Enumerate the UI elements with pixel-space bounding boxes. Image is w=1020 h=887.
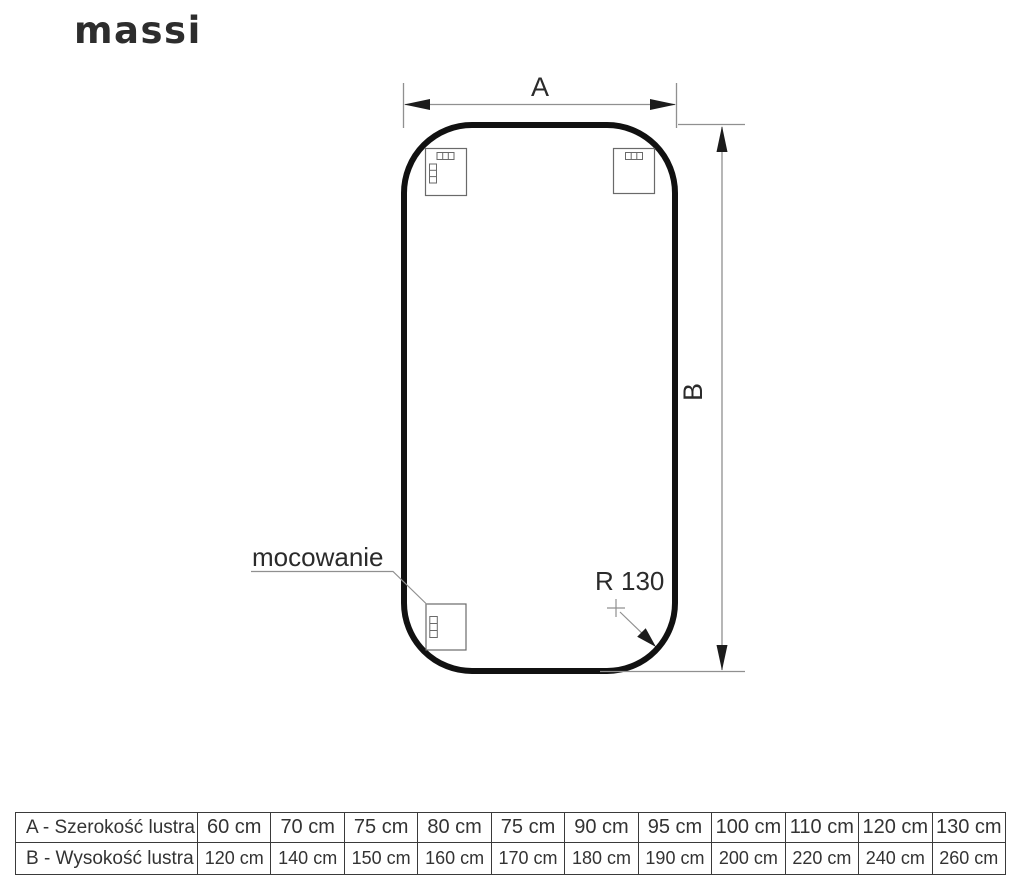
arrowhead-a-left — [404, 99, 430, 110]
width-value: 60 cm — [198, 813, 271, 843]
width-value: 95 cm — [638, 813, 711, 843]
width-value: 120 cm — [859, 813, 932, 843]
width-value: 80 cm — [418, 813, 491, 843]
arrowhead-a-right — [650, 99, 676, 110]
height-value: 140 cm — [271, 843, 344, 875]
table-row-height: B - Wysokość lustra 120 cm 140 cm 150 cm… — [16, 843, 1006, 875]
mounting-label: mocowanie — [252, 542, 384, 572]
width-value: 70 cm — [271, 813, 344, 843]
arrowhead-b-top — [717, 126, 728, 152]
height-value: 190 cm — [638, 843, 711, 875]
height-value: 160 cm — [418, 843, 491, 875]
product-dimension-sheet: massi A B — [0, 0, 1020, 887]
mounting-bracket-bottom-left — [426, 604, 466, 650]
height-value: 260 cm — [932, 843, 1005, 875]
mirror-diagram: A B mocowani — [0, 0, 1020, 800]
mounting-bracket-top-left — [426, 149, 467, 196]
size-table: A - Szerokość lustra 60 cm 70 cm 75 cm 8… — [15, 812, 1006, 875]
height-value: 120 cm — [198, 843, 271, 875]
height-value: 150 cm — [344, 843, 417, 875]
height-value: 200 cm — [712, 843, 785, 875]
height-value: 220 cm — [785, 843, 858, 875]
width-value: 130 cm — [932, 813, 1005, 843]
radius-label: R 130 — [595, 566, 664, 596]
width-value: 100 cm — [712, 813, 785, 843]
arrowhead-b-bottom — [717, 645, 728, 671]
height-value: 240 cm — [859, 843, 932, 875]
mounting-bracket-top-right — [614, 149, 655, 194]
height-dim-label: B — [678, 383, 708, 401]
width-value: 75 cm — [344, 813, 417, 843]
row-label-height: B - Wysokość lustra — [16, 843, 198, 875]
width-dim-label: A — [531, 72, 549, 102]
width-value: 90 cm — [565, 813, 638, 843]
width-value: 75 cm — [491, 813, 564, 843]
height-value: 180 cm — [565, 843, 638, 875]
height-value: 170 cm — [491, 843, 564, 875]
mounting-leader-line — [251, 572, 427, 605]
width-value: 110 cm — [785, 813, 858, 843]
table-row-width: A - Szerokość lustra 60 cm 70 cm 75 cm 8… — [16, 813, 1006, 843]
row-label-width: A - Szerokość lustra — [16, 813, 198, 843]
